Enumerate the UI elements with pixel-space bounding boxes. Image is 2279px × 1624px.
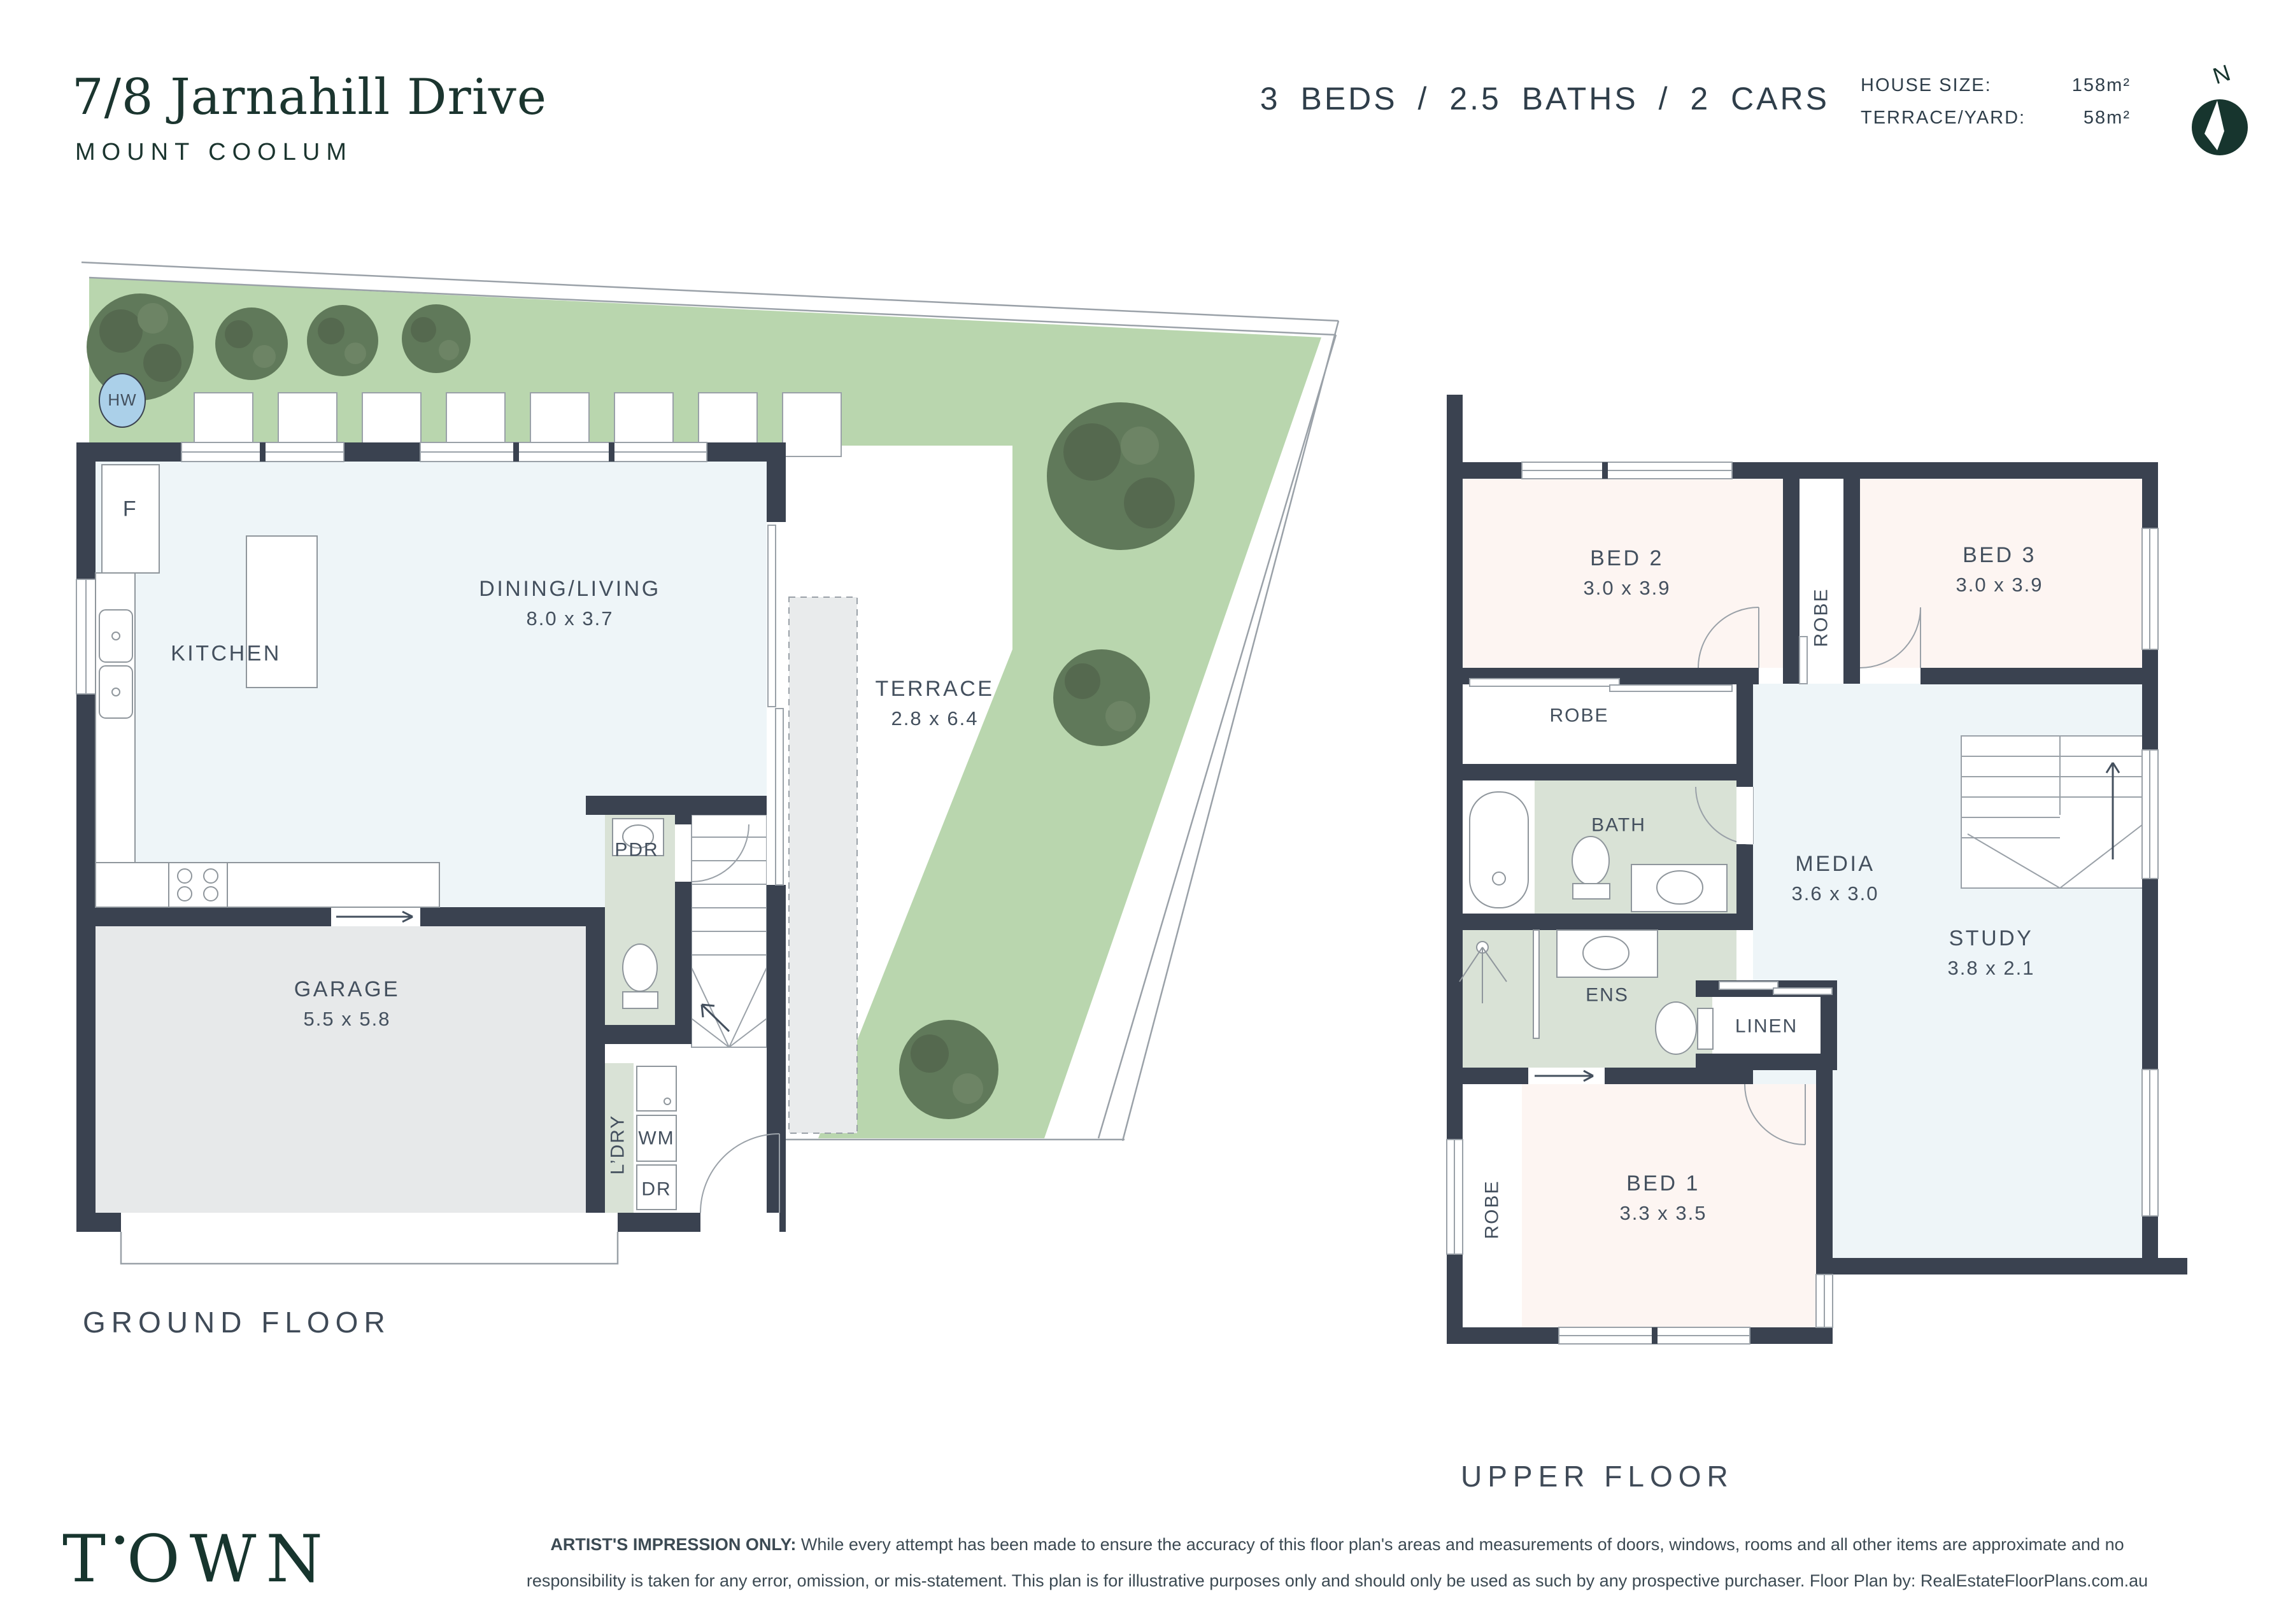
room-label-fridge: F xyxy=(123,493,138,525)
logo-letters-own: OWN xyxy=(127,1522,332,1597)
disclaimer-line-2: responsibility is taken for any error, o… xyxy=(408,1563,2267,1599)
room-label-study: STUDY 3.8 x 2.1 xyxy=(1948,923,2035,983)
room-dims: 3.0 x 3.9 xyxy=(1956,571,2043,600)
floorplan-page: { "header": { "address_line1": "7/8 Jarn… xyxy=(0,0,2279,1624)
room-label-linen: LINEN xyxy=(1735,1012,1798,1040)
garage-door-panel xyxy=(121,1232,618,1264)
bath-door-opening xyxy=(1736,787,1753,844)
ground-floor-title: GROUND FLOOR xyxy=(83,1305,391,1339)
room-label-pdr: PDR xyxy=(614,836,658,864)
room-label-dining: DINING/LIVING 8.0 x 3.7 xyxy=(479,574,660,633)
room-label-bed2: BED 2 3.0 x 3.9 xyxy=(1584,543,1671,603)
disclaimer-body-1: While every attempt has been made to ens… xyxy=(801,1535,2124,1554)
room-label-robe-bed2: ROBE xyxy=(1549,702,1608,730)
garage-door-opening xyxy=(121,1213,618,1232)
house-size-label: HOUSE SIZE: xyxy=(1861,75,1992,96)
terrace-overhang xyxy=(789,597,857,1133)
disclaimer-line-1: ARTIST'S IMPRESSION ONLY: While every at… xyxy=(408,1527,2267,1563)
room-dims: 8.0 x 3.7 xyxy=(479,605,660,633)
room-dims: 3.6 x 3.0 xyxy=(1792,880,1879,908)
room-label-dr: DR xyxy=(641,1175,671,1203)
room-name: TERRACE xyxy=(876,677,995,701)
agency-logo: TOWN xyxy=(62,1522,332,1597)
upper-floor-plan xyxy=(1433,369,2279,1490)
room-label-terrace: TERRACE 2.8 x 6.4 xyxy=(876,674,995,733)
room-label-robe-bed1: ROBE xyxy=(1478,1180,1506,1239)
room-label-wm: WM xyxy=(638,1124,674,1152)
room-label-media: MEDIA 3.6 x 3.0 xyxy=(1792,849,1879,908)
disclaimer-prefix: ARTIST'S IMPRESSION ONLY: xyxy=(550,1535,796,1554)
room-dims: 5.5 x 5.8 xyxy=(294,1005,400,1034)
terrace-size-value: 58m² xyxy=(2084,108,2131,129)
entry-door-opening xyxy=(700,1213,779,1232)
property-address: 7/8 Jarnahill Drive xyxy=(72,69,547,126)
room-label-ens: ENS xyxy=(1586,981,1629,1009)
area-summary: HOUSE SIZE: 158m² TERRACE/YARD: 58m² xyxy=(1861,75,2131,140)
room-name: BED 3 xyxy=(1963,543,2036,567)
terrace-sliding-door xyxy=(767,522,786,885)
logo-letter-t: T xyxy=(62,1522,115,1597)
room-name: MEDIA xyxy=(1795,852,1875,876)
room-label-kitchen: KITCHEN xyxy=(171,638,281,669)
stairs-upper xyxy=(1961,736,2143,888)
house-size-value: 158m² xyxy=(2072,75,2131,96)
disclaimer-text: ARTIST'S IMPRESSION ONLY: While every at… xyxy=(408,1527,2267,1599)
property-suburb: MOUNT COOLUM xyxy=(75,139,353,166)
room-label-bath: BATH xyxy=(1591,811,1646,839)
north-letter: N xyxy=(2210,59,2233,89)
room-dims: 3.3 x 3.5 xyxy=(1620,1199,1707,1228)
room-label-bed3: BED 3 3.0 x 3.9 xyxy=(1956,540,2043,600)
terrace-size-label: TERRACE/YARD: xyxy=(1861,108,2026,129)
room-label-garage: GARAGE 5.5 x 5.8 xyxy=(294,974,400,1034)
house-size-row: HOUSE SIZE: 158m² xyxy=(1861,75,2131,96)
garage-floor xyxy=(96,926,586,1213)
room-label-robe-corridor: ROBE xyxy=(1807,588,1835,647)
pdr-door-opening xyxy=(675,824,692,882)
room-dims: 2.8 x 6.4 xyxy=(876,705,995,733)
terrace-size-row: TERRACE/YARD: 58m² xyxy=(1861,108,2131,129)
upper-floor-title: UPPER FLOOR xyxy=(1461,1459,1734,1493)
room-dims: 3.0 x 3.9 xyxy=(1584,574,1671,603)
ground-floor-plan xyxy=(64,242,1401,1337)
beds-baths-cars-summary: 3 BEDS / 2.5 BATHS / 2 CARS xyxy=(1260,80,1829,117)
room-name: BED 1 xyxy=(1626,1171,1700,1196)
room-name: STUDY xyxy=(1949,926,2034,950)
room-name: BED 2 xyxy=(1590,546,1664,570)
room-name: DINING/LIVING xyxy=(479,577,660,601)
room-label-hw: HW xyxy=(108,388,136,413)
room-name: GARAGE xyxy=(294,977,400,1001)
logo-dot-icon xyxy=(115,1536,124,1544)
room-dims: 3.8 x 2.1 xyxy=(1948,954,2035,983)
room-label-bed1: BED 1 3.3 x 3.5 xyxy=(1620,1168,1707,1228)
room-label-ldry: L’DRY xyxy=(604,1115,632,1175)
north-compass-icon: N xyxy=(2164,50,2272,177)
